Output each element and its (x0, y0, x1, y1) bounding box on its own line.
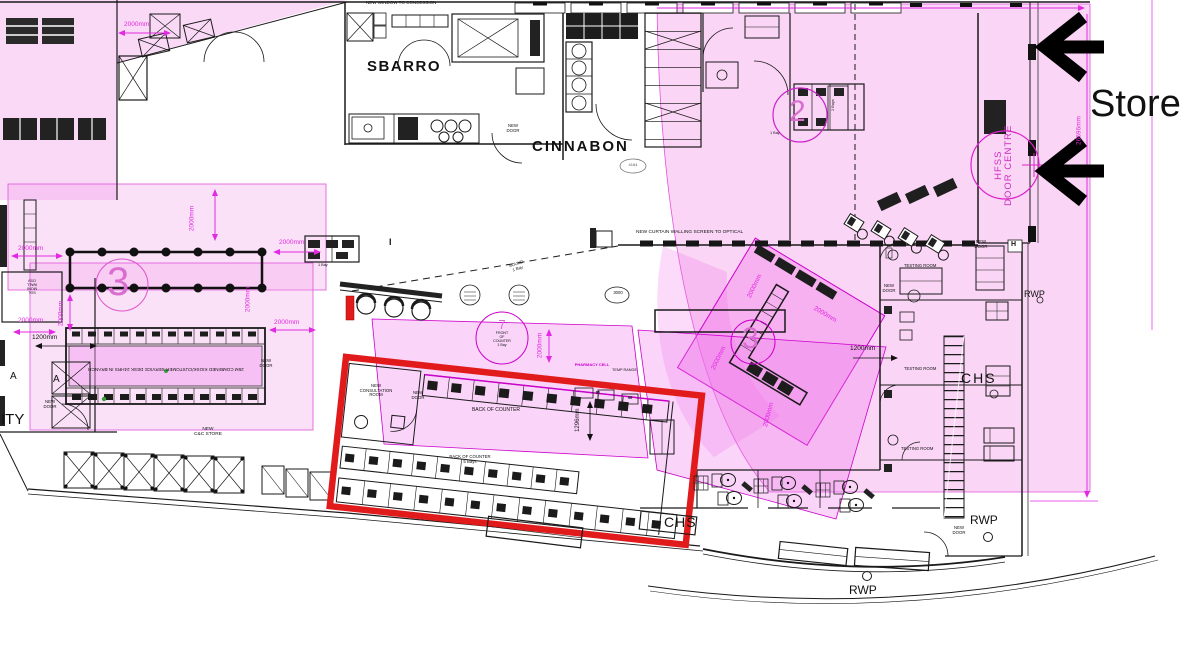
kiosk-note-label: 25M COMBINED KIOSK/CUSTOMER SERVICE DESK… (72, 366, 260, 371)
consultation-room-label: NEWCONSULTATIONROOM (358, 384, 394, 398)
dim-2000-a: 2000mm (124, 21, 149, 28)
wall-note-line4: OSV (28, 278, 36, 282)
h-grid-marker: H (1011, 241, 1016, 249)
dim-2000-h: 2000mm (536, 324, 543, 368)
dim-1200-b: 1200mm (850, 345, 875, 352)
wall-note-line2: MONI (27, 286, 37, 290)
i-grid-marker: I (389, 238, 392, 248)
dim-13242-label: 13242mm (812, 0, 843, 3)
foc-line4: 1 Bay (497, 343, 506, 347)
one-bay-rack-label: 1 Bay (318, 263, 328, 267)
circle-number-7: 7 (498, 317, 505, 332)
cc-store-line2: C&C STORE (194, 432, 222, 437)
ity-text-fragment: ITY (1, 412, 24, 428)
dim-2000-i: 2000mm (188, 197, 195, 241)
wall-note-line1: SGL (28, 290, 36, 294)
two-bays-label: 2 Bays (831, 87, 835, 123)
floor-plan-drawing (0, 0, 1200, 661)
wall-note-label: SGLMONIWALLOSV (6, 278, 58, 294)
rwp-label-3: RWP (849, 584, 877, 597)
front-of-counter-circle-label: 7FRONTOFCOUNTER1 Bay (476, 318, 528, 348)
floor-plan-canvas: Store SBARRO CINNABON NEW WINDOW TO CONC… (0, 0, 1200, 661)
m-marker-1: M (596, 391, 600, 396)
one-bay-c2-label: 1 Bay (770, 131, 780, 135)
cc-store-label: NEWC&C STORE (186, 427, 230, 437)
zone-circle-2: 2 (789, 97, 806, 127)
consultation-line3: ROOM (369, 392, 382, 397)
new-door-line2: DOOR (412, 395, 425, 400)
dim-2000-g: 2000mm (18, 317, 43, 324)
new-door-label-7: NEWDOOR (949, 526, 969, 535)
testing-room-label-3: TESTING ROOM (901, 447, 933, 452)
rwp-label-1: RWP (1024, 290, 1045, 300)
pink-highlight-zones (0, 0, 1090, 519)
boc-line2: 5 Bays (463, 459, 476, 464)
w-marker-1: W (628, 396, 632, 401)
testing-room-label-1: TESTING ROOM (904, 264, 936, 269)
a-marker-2: A (53, 375, 60, 386)
wall-note-line3: WALL (27, 282, 37, 286)
new-door-line2: DOOR (953, 530, 966, 535)
dim-2000-d: 2000mm (279, 239, 304, 246)
dim-1200-a: 1200mm (32, 334, 57, 341)
new-door-label-4: NEWDOOR (408, 391, 428, 400)
back-of-counter-5bays-label: BACK OF COUNTER5 Bays (444, 455, 496, 464)
dim-2000-f: 2000mm (274, 319, 299, 326)
new-door-line2: DOOR (260, 363, 273, 368)
new-door-label-6: NEWDOOR (971, 240, 991, 249)
dim-2000-e: 2000mm (244, 278, 251, 322)
dim-1296-label: 1296mm (575, 398, 581, 442)
dim-3000-label: 3000 (608, 291, 628, 296)
sbarro-label: SBARRO (367, 59, 441, 75)
testing-room-label-2: TESTING ROOM (904, 367, 936, 372)
dim-26696-label: 26696mm (1075, 104, 1082, 158)
pharmacy-cell-label: PHARMACY CELL (570, 363, 614, 367)
new-door-line2: DOOR (507, 128, 520, 133)
new-door-label-5: NEWDOOR (879, 284, 899, 293)
rwp-label-2: RWP (970, 514, 998, 527)
dim-2000-c: 2000mm (57, 292, 64, 336)
new-door-label-1: NEWDOOR (503, 124, 523, 133)
back-of-counter-label: BACK OF COUNTER (468, 408, 524, 413)
store-label: Store (1090, 84, 1181, 125)
hfss-line2: DOOR CENTRE (1003, 125, 1014, 206)
hfss-door-centre-label: HFSSDOOR CENTRE (994, 113, 1015, 217)
new-door-label-3: NEWDOOR (40, 400, 60, 409)
chs-label-2: CHS (664, 515, 697, 530)
chs-label-1: CHS (961, 371, 997, 386)
zone-circle-3-right: 3 (742, 324, 759, 354)
cc-store-racking (64, 452, 332, 500)
curtain-screen-label: NEW CURTAIN WALLING SCREEN TO OPTICAL (636, 230, 743, 235)
ref-4164-label: 4164 (623, 163, 643, 167)
temp-range-label: TEMP RANGE (612, 368, 637, 372)
new-window-concession-label: NEW WINDOW TO CONCESSION (366, 1, 436, 6)
new-door-line2: DOOR (883, 288, 896, 293)
a-marker-1: A (10, 372, 17, 383)
dim-2000-b: 2000mm (18, 245, 43, 252)
zone-circle-3-left: 3 (107, 262, 129, 302)
new-door-line2: DOOR (44, 404, 57, 409)
cinnabon-label: CINNABON (532, 139, 629, 155)
benches (486, 511, 929, 570)
new-door-line2: DOOR (975, 244, 988, 249)
